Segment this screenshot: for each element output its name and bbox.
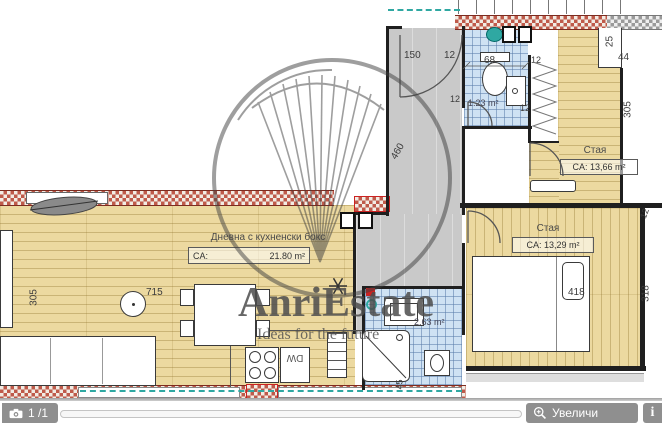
- radiator: [530, 180, 576, 192]
- toolbar-top-edge: [0, 398, 662, 401]
- dim-12-bath-left: 12: [450, 94, 460, 105]
- wall: [462, 126, 532, 129]
- bedroom1-area: CA: 13,66 m²: [560, 159, 638, 175]
- sink-bath1-drain: [512, 88, 518, 94]
- dim-25: 25: [605, 27, 616, 57]
- viewer-toolbar: 1 /1 Увеличи i: [0, 398, 662, 425]
- wall: [462, 243, 465, 335]
- living-area-value: 21.80 m²: [269, 251, 305, 261]
- wall: [620, 68, 623, 203]
- info-icon: i: [651, 405, 655, 421]
- bedroom1-floor-ext: [529, 142, 559, 204]
- dim-305-right: 305: [623, 95, 634, 125]
- floorplan-viewer: Дневна с кухненски бокс CA: 21.80 m² Ста…: [0, 0, 662, 425]
- progress-track[interactable]: [60, 410, 522, 418]
- cabinet-box: [518, 26, 532, 43]
- dim-715: 715: [146, 287, 163, 298]
- wall: [386, 26, 389, 216]
- dishwasher-label: DW: [281, 352, 309, 363]
- dim-44: 44: [618, 52, 629, 63]
- balcony-railing: [458, 0, 622, 14]
- wall: [528, 141, 559, 143]
- bedroom1-area-value: CA: 13,66 m²: [572, 162, 625, 172]
- sofa-cushion-line: [50, 338, 51, 384]
- zoom-button[interactable]: Увеличи: [526, 403, 638, 423]
- sofa-cushion-line: [102, 338, 103, 384]
- window-bottom-1: [78, 387, 240, 398]
- kitchen-upper-cabinet: [358, 212, 373, 229]
- window-bottom-2: [278, 387, 462, 398]
- round-table-center: [132, 303, 135, 306]
- faucet: [396, 334, 403, 341]
- watermark-brand: AnriEstate: [238, 282, 434, 324]
- bed-fold-line: [556, 257, 557, 351]
- bedroom2-area-value: CA: 13,29 m²: [526, 240, 579, 250]
- terrace-strip: [466, 373, 644, 382]
- burner: [249, 351, 261, 363]
- dim-12-bath-right: 12: [520, 103, 530, 114]
- living-room-area: CA: 21.80 m²: [188, 247, 310, 264]
- window-living-top: [26, 192, 108, 204]
- dim-12-closet: 12: [531, 55, 541, 66]
- wall: [528, 55, 531, 143]
- page-indicator-badge: 1 /1: [2, 403, 58, 423]
- hall-sink: [486, 27, 503, 42]
- chair: [180, 289, 194, 306]
- dim-12-top: 12: [444, 50, 455, 61]
- living-room-name: Дневна с кухненски бокс: [183, 232, 353, 243]
- wall: [460, 203, 662, 208]
- closet-floor: [531, 57, 558, 141]
- camera-icon: [9, 408, 23, 419]
- toilet-bath2-bowl: [430, 354, 444, 372]
- dim-305-left: 305: [29, 283, 40, 313]
- dim-150: 150: [404, 50, 421, 61]
- watermark-tagline: Ideas for the future: [257, 326, 379, 344]
- toilet-bath1-bowl: [482, 62, 508, 96]
- burner: [249, 367, 261, 379]
- zoom-in-icon: [533, 406, 547, 420]
- bedroom2-area: CA: 13,29 m²: [512, 237, 594, 253]
- wall-block-a: [354, 196, 390, 212]
- bedroom1-name: Стая: [575, 145, 615, 156]
- window-line-top: [388, 9, 460, 11]
- kitchen-upper-cabinet: [340, 212, 355, 229]
- side-cabinet: [0, 230, 13, 328]
- bath1-area: 1.23 m²: [468, 98, 499, 109]
- dim-68: 68: [484, 55, 495, 66]
- cabinet-box: [502, 26, 516, 43]
- sofa: [0, 336, 156, 386]
- wall: [462, 26, 465, 108]
- living-area-label: CA:: [193, 251, 208, 261]
- dim-45: 45: [395, 370, 406, 400]
- dim-318: 318: [641, 279, 652, 309]
- bedroom2-name: Стая: [528, 223, 568, 234]
- dim-418: 418: [568, 287, 585, 298]
- wall: [462, 128, 465, 215]
- burner: [264, 367, 276, 379]
- zoom-button-label: Увеличи: [552, 406, 598, 420]
- chair: [180, 320, 194, 337]
- burner: [264, 351, 276, 363]
- page-indicator-text: 1 /1: [28, 406, 48, 420]
- wall: [466, 366, 646, 371]
- info-button[interactable]: i: [643, 403, 662, 423]
